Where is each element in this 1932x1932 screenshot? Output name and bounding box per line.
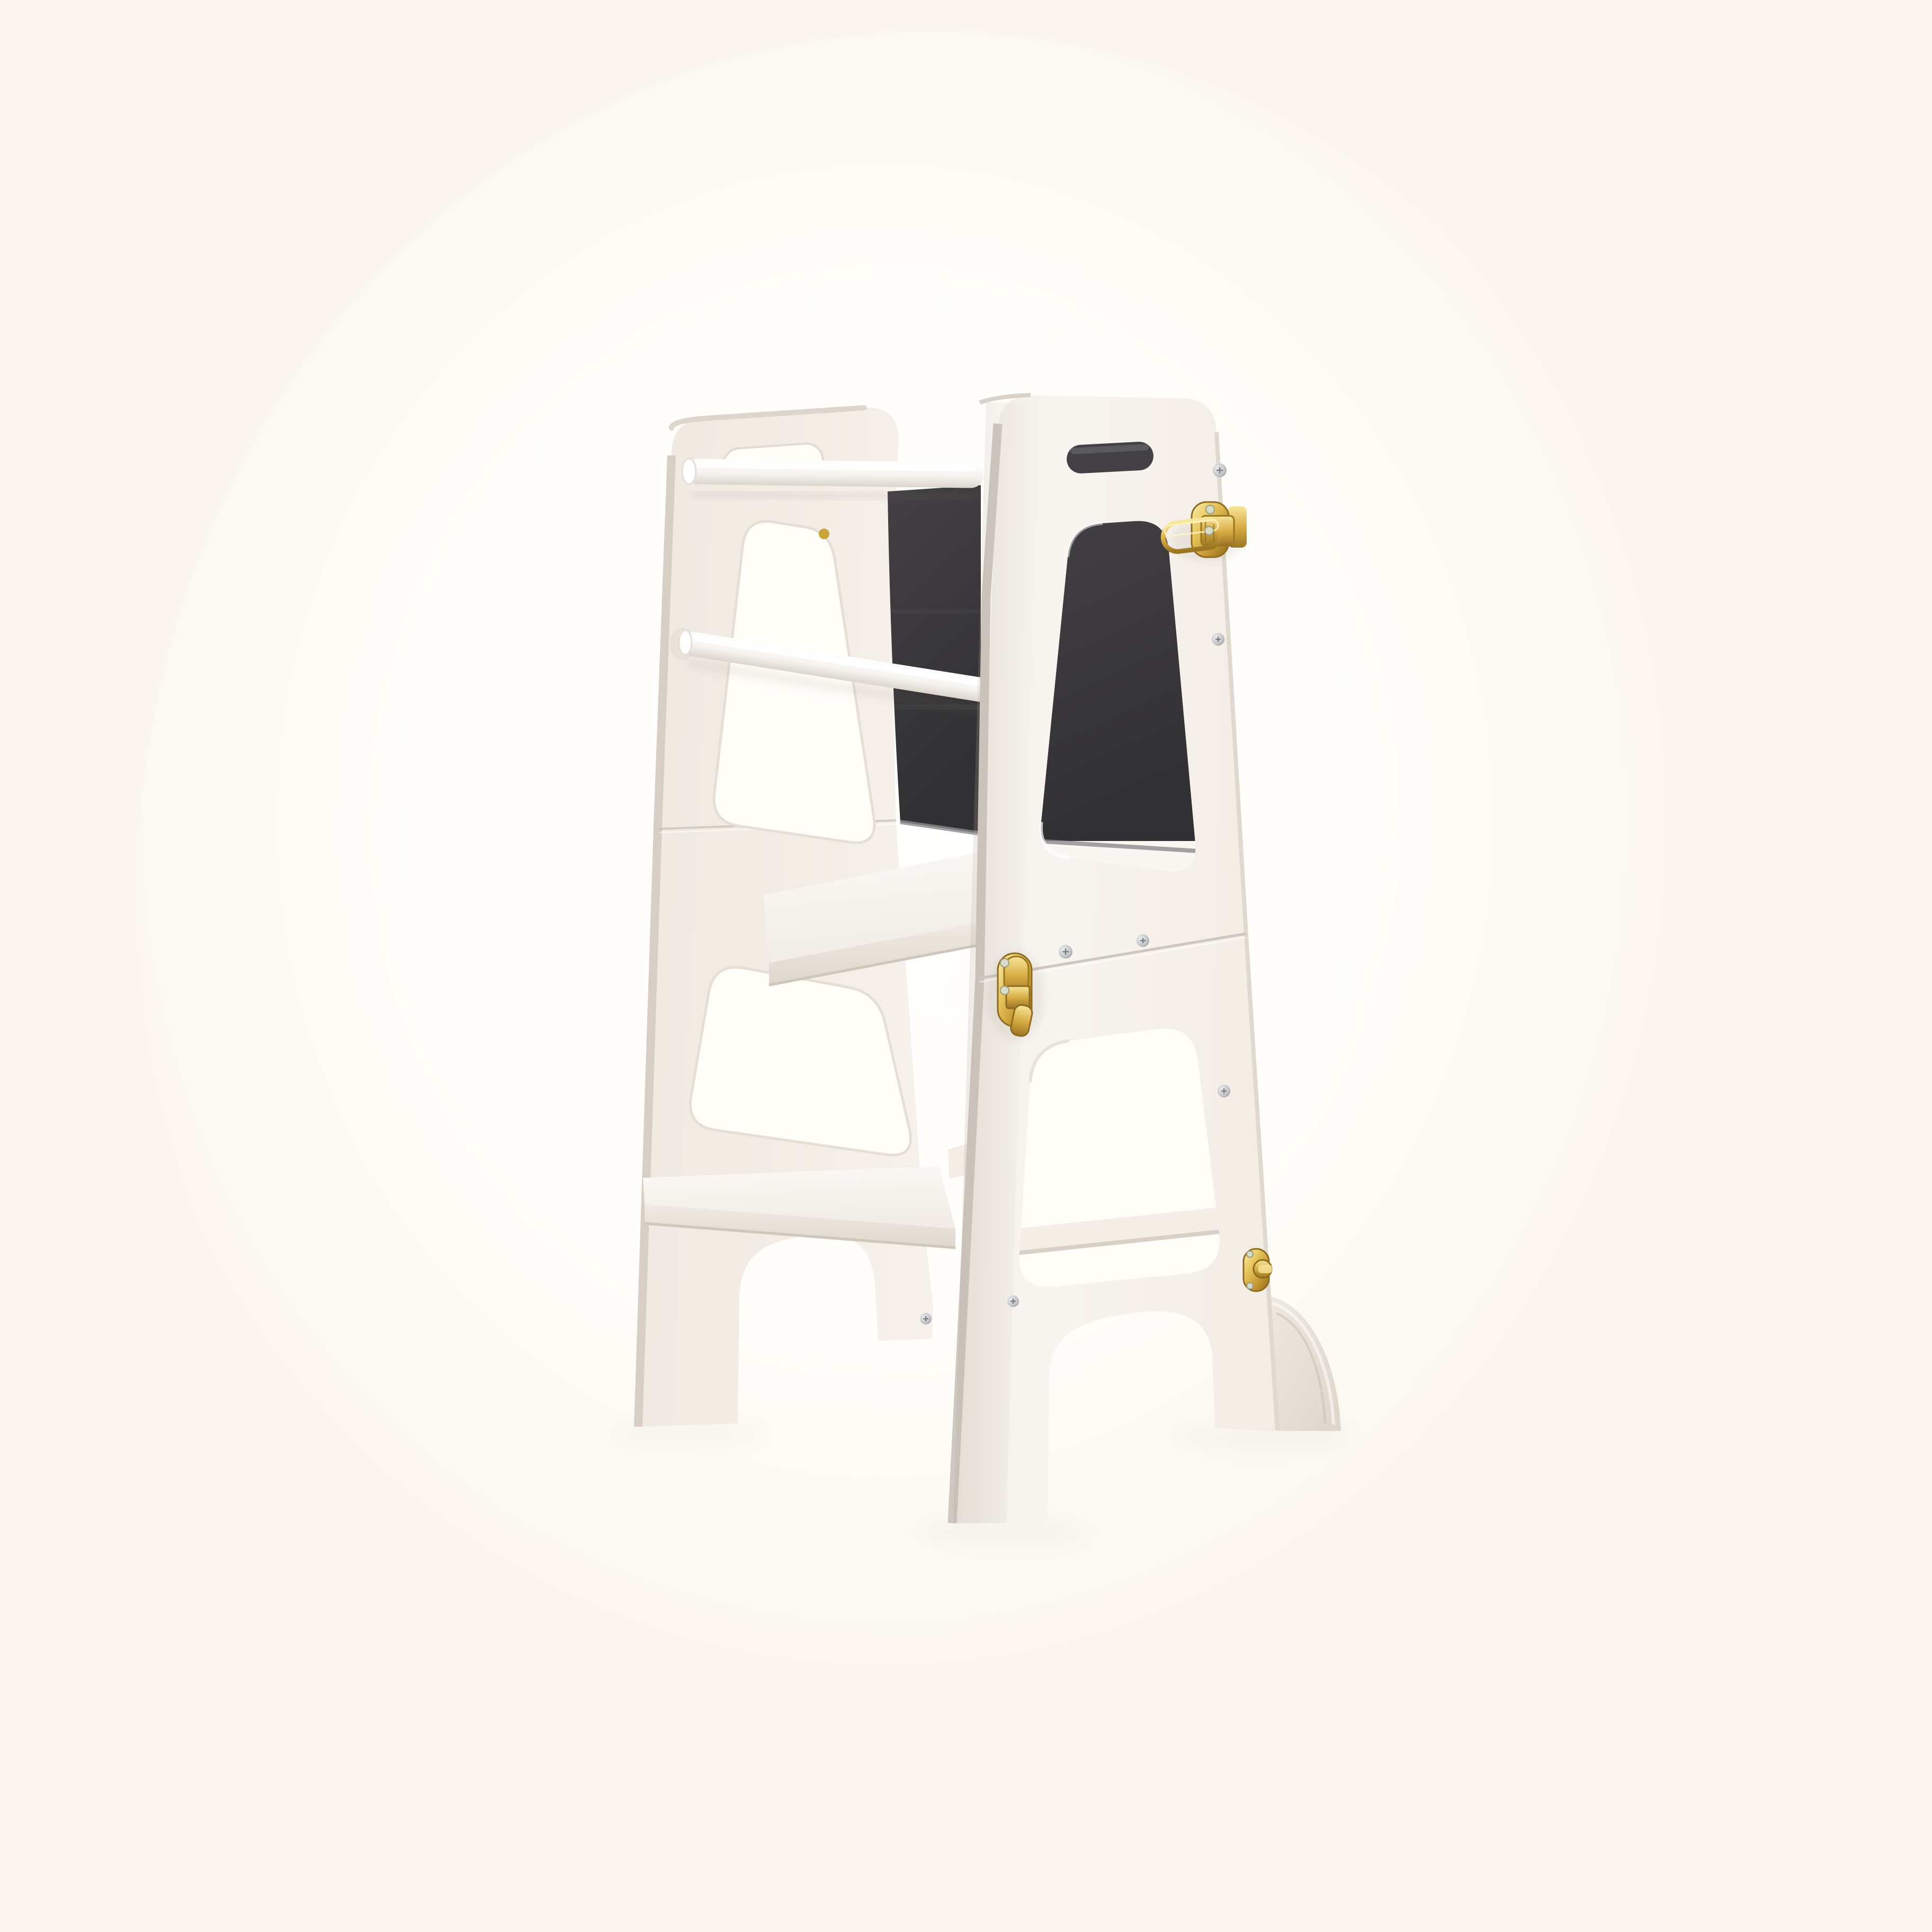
toggle-latch-screw [1206,505,1214,514]
learning-tower-illustration [0,0,1932,1932]
screw [1059,945,1072,959]
fold-latch-screw [1000,986,1009,995]
fold-latch-screw [1000,959,1009,967]
screw [1007,1295,1019,1307]
top-handrail-end-cap [682,459,696,484]
chalkboard-panel [888,485,981,834]
turn-latch [1244,1249,1272,1291]
screw [1137,934,1149,947]
gold-screw [819,529,829,539]
product-photo-canvas [0,0,1932,1932]
middle-handrail-end-cap [679,630,692,655]
turn-latch-screw [1247,1283,1253,1289]
screw [920,1313,932,1325]
screw [1218,1085,1230,1097]
turn-latch-knob-highlight [1258,1265,1272,1273]
leg-shadow [606,1423,765,1444]
chalkboard-texture [890,609,981,613]
turn-latch-screw [1247,1251,1253,1257]
screw [1213,463,1227,477]
fold-latch [987,951,1045,1041]
top-handrail-shadow [691,494,980,498]
chalkboard-face [888,485,981,834]
toggle-latch-screw [1205,526,1213,535]
screw [1212,633,1224,646]
